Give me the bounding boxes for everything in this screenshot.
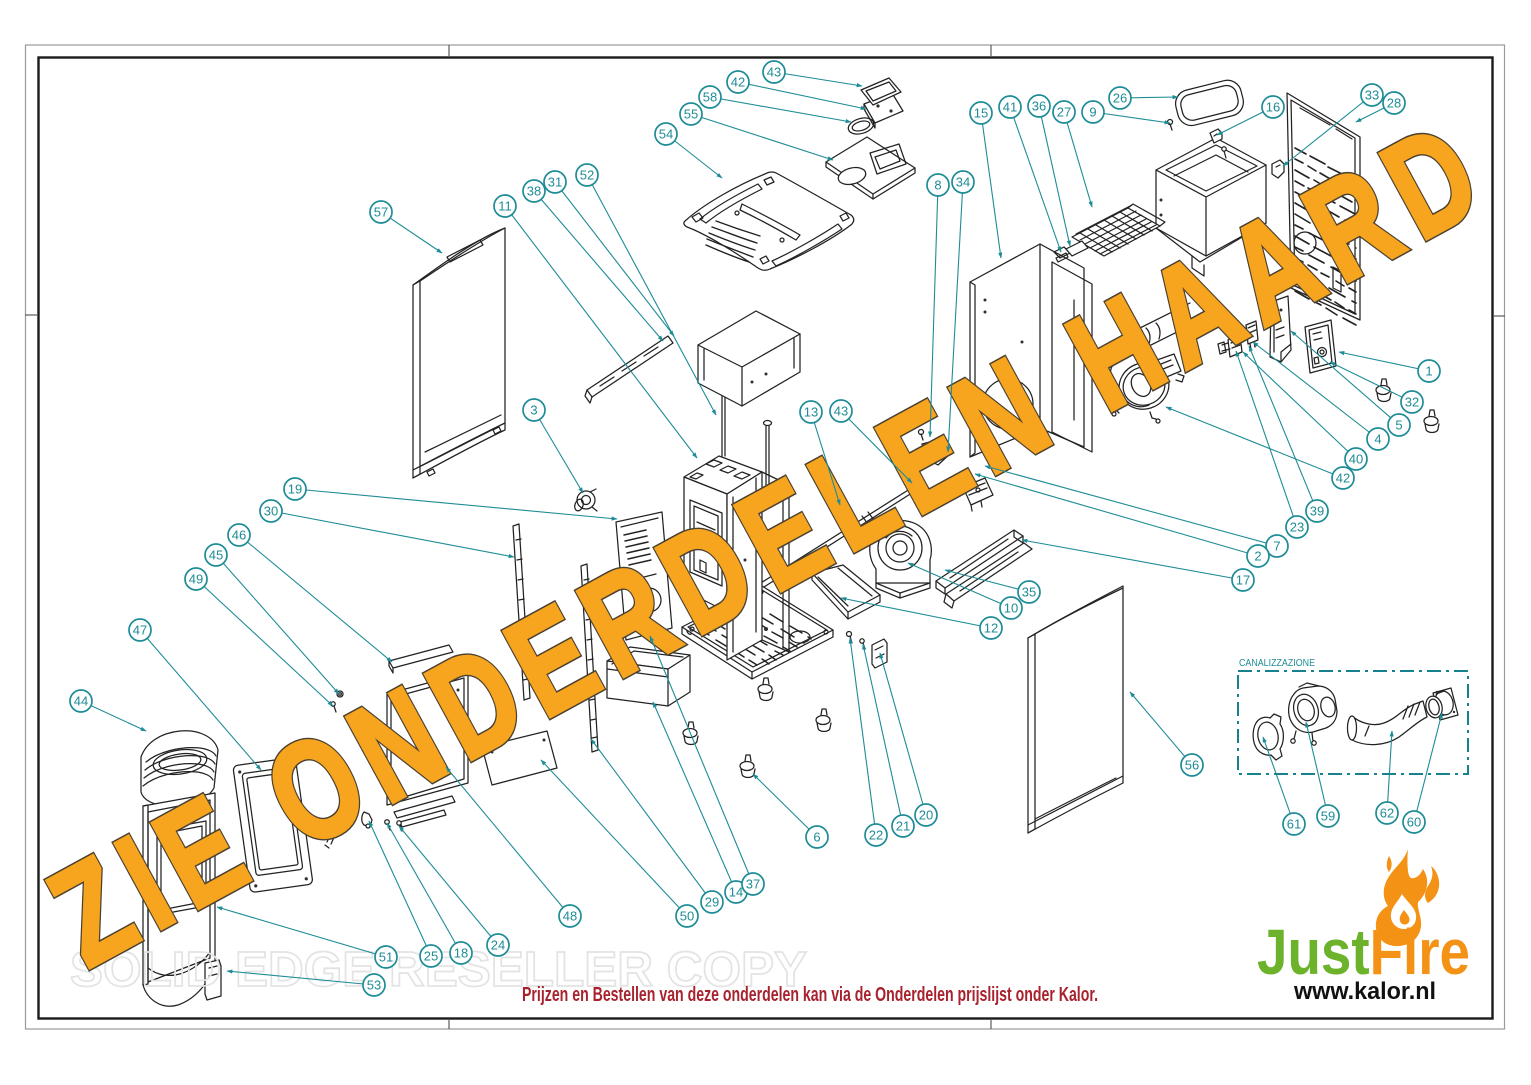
svg-text:28: 28 <box>1387 96 1401 111</box>
svg-text:23: 23 <box>1290 520 1304 535</box>
svg-text:www.kalor.nl: www.kalor.nl <box>1293 978 1436 1005</box>
svg-text:26: 26 <box>1113 91 1127 106</box>
svg-text:43: 43 <box>834 404 848 419</box>
svg-text:5: 5 <box>1395 418 1402 433</box>
svg-text:19: 19 <box>288 482 302 497</box>
svg-text:27: 27 <box>1057 105 1071 120</box>
svg-text:49: 49 <box>189 572 203 587</box>
svg-text:15: 15 <box>974 106 988 121</box>
svg-text:58: 58 <box>703 90 717 105</box>
svg-text:21: 21 <box>896 819 910 834</box>
svg-text:50: 50 <box>680 909 694 924</box>
svg-text:9: 9 <box>1089 105 1096 120</box>
svg-text:10: 10 <box>1004 601 1018 616</box>
svg-text:33: 33 <box>1365 88 1379 103</box>
svg-text:12: 12 <box>984 621 998 636</box>
svg-text:37: 37 <box>746 877 760 892</box>
svg-text:29: 29 <box>705 895 719 910</box>
svg-text:30: 30 <box>264 504 278 519</box>
svg-text:42: 42 <box>1336 471 1350 486</box>
svg-text:54: 54 <box>659 127 673 142</box>
svg-text:22: 22 <box>869 828 883 843</box>
svg-text:3: 3 <box>530 403 537 418</box>
svg-text:47: 47 <box>133 623 147 638</box>
svg-text:52: 52 <box>580 168 594 183</box>
svg-text:16: 16 <box>1266 100 1280 115</box>
svg-text:62: 62 <box>1380 806 1394 821</box>
svg-text:48: 48 <box>563 909 577 924</box>
svg-text:55: 55 <box>684 107 698 122</box>
svg-text:4: 4 <box>1374 432 1381 447</box>
svg-text:13: 13 <box>804 405 818 420</box>
svg-text:24: 24 <box>491 938 505 953</box>
svg-text:Prijzen en Bestellen van deze: Prijzen en Bestellen van deze onderdelen… <box>522 983 1098 1006</box>
svg-text:46: 46 <box>232 528 246 543</box>
svg-text:61: 61 <box>1287 817 1301 832</box>
svg-text:8: 8 <box>934 178 941 193</box>
svg-text:44: 44 <box>74 694 88 709</box>
svg-text:31: 31 <box>548 175 562 190</box>
svg-text:59: 59 <box>1321 809 1335 824</box>
svg-text:11: 11 <box>498 199 512 214</box>
svg-text:36: 36 <box>1032 99 1046 114</box>
svg-text:18: 18 <box>454 946 468 961</box>
svg-text:41: 41 <box>1003 100 1017 115</box>
svg-text:56: 56 <box>1185 758 1199 773</box>
svg-text:39: 39 <box>1310 504 1324 519</box>
svg-text:1: 1 <box>1425 364 1432 379</box>
svg-text:34: 34 <box>956 175 970 190</box>
svg-text:60: 60 <box>1407 815 1421 830</box>
svg-text:7: 7 <box>1273 539 1280 554</box>
svg-text:32: 32 <box>1405 395 1419 410</box>
svg-text:20: 20 <box>919 808 933 823</box>
svg-text:2: 2 <box>1254 549 1261 564</box>
svg-text:53: 53 <box>367 978 381 993</box>
svg-text:14: 14 <box>729 885 743 900</box>
svg-text:43: 43 <box>767 65 781 80</box>
svg-text:38: 38 <box>527 184 541 199</box>
svg-text:17: 17 <box>1236 573 1250 588</box>
svg-text:25: 25 <box>424 949 438 964</box>
svg-text:45: 45 <box>209 548 223 563</box>
svg-text:57: 57 <box>374 205 388 220</box>
svg-text:35: 35 <box>1022 585 1036 600</box>
svg-text:51: 51 <box>379 950 393 965</box>
svg-text:40: 40 <box>1349 452 1363 467</box>
svg-text:6: 6 <box>813 830 820 845</box>
svg-text:CANALIZZAZIONE: CANALIZZAZIONE <box>1239 657 1315 669</box>
svg-text:42: 42 <box>731 75 745 90</box>
